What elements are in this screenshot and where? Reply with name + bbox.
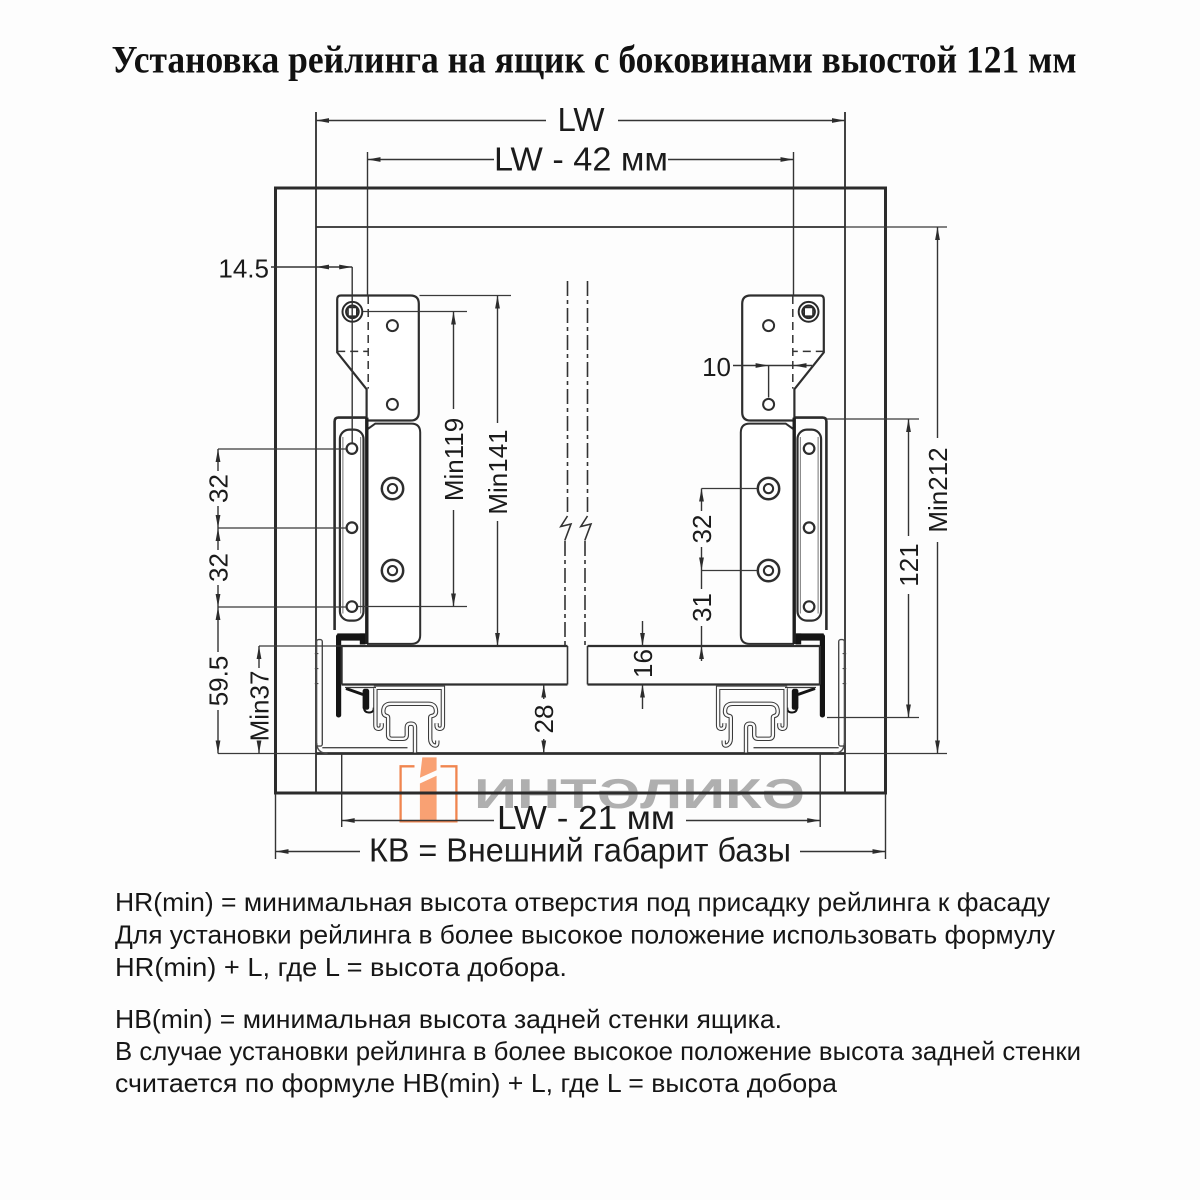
svg-text:32: 32 [687, 515, 717, 544]
svg-text:14.5: 14.5 [218, 254, 269, 284]
svg-text:КВ = Внешний габарит базы: КВ = Внешний габарит базы [369, 832, 791, 869]
svg-text:32: 32 [204, 474, 234, 503]
svg-text:10: 10 [702, 352, 731, 382]
svg-text:HB(min) = минимальная высота з: HB(min) = минимальная высота задней стен… [115, 1004, 782, 1034]
svg-text:Min141: Min141 [483, 429, 513, 514]
svg-text:LW - 21 мм: LW - 21 мм [497, 799, 675, 836]
svg-text:28: 28 [529, 705, 559, 734]
svg-text:HR(min) + L, где L = высота д: HR(min) + L, где L = высота добора. [115, 952, 567, 982]
svg-text:16: 16 [628, 649, 658, 678]
svg-text:59.5: 59.5 [204, 656, 234, 707]
svg-text:Для установки рейлинга в более: Для установки рейлинга в более высокое п… [115, 920, 1055, 950]
svg-text:Min37: Min37 [245, 671, 275, 742]
svg-text:считается по формуле HB(min) +: считается по формуле HB(min) + L, где L … [115, 1068, 838, 1098]
svg-text:31: 31 [687, 593, 717, 622]
svg-text:Min119: Min119 [439, 418, 469, 501]
svg-text:Установка рейлинга на ящик с б: Установка рейлинга на ящик с боковинами … [112, 39, 1077, 82]
svg-text:Min212: Min212 [923, 447, 953, 532]
svg-text:HR(min) = минимальная высота о: HR(min) = минимальная высота отверстия п… [115, 887, 1050, 917]
svg-text:LW - 42 мм: LW - 42 мм [494, 141, 668, 178]
svg-text:LW: LW [557, 101, 605, 138]
svg-text:32: 32 [204, 553, 234, 582]
svg-text:121: 121 [894, 543, 924, 586]
svg-text:В случае установки рейлинга в: В случае установки рейлинга в более высо… [115, 1036, 1081, 1066]
